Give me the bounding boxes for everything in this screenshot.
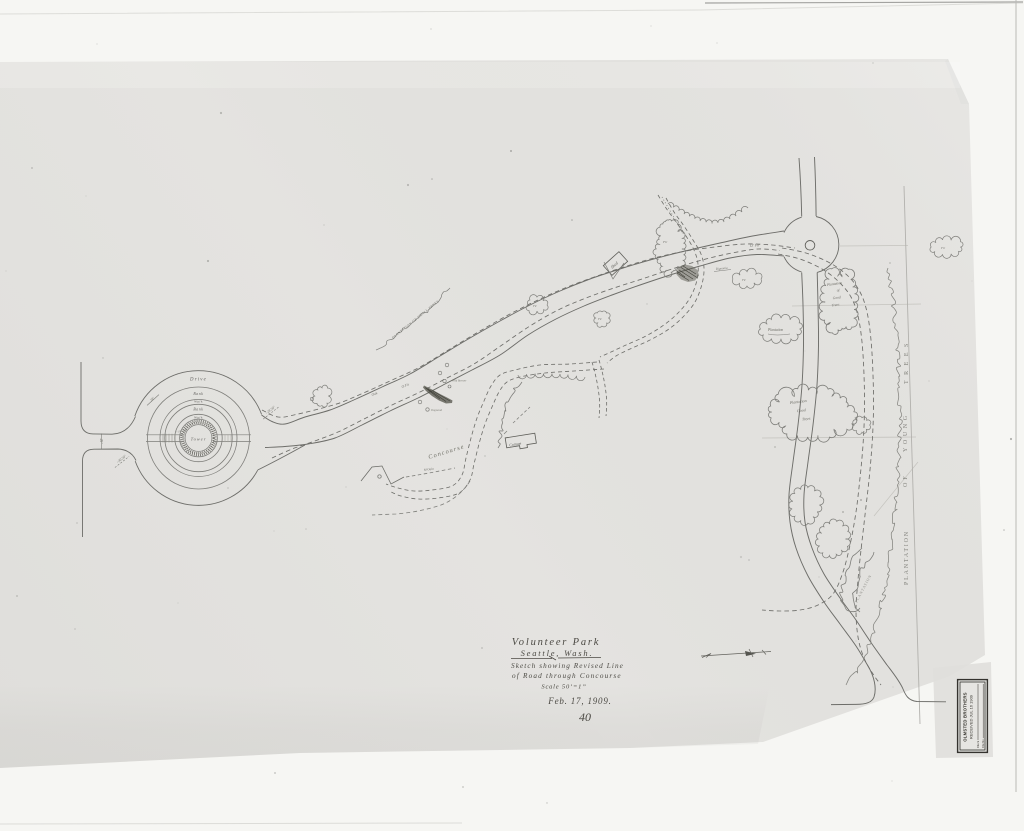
svg-text:Tower: Tower — [191, 436, 207, 441]
svg-text:Feb. 17, 1909.: Feb. 17, 1909. — [547, 696, 611, 706]
svg-text:Walk: Walk — [194, 400, 203, 404]
svg-text:File No.: File No. — [981, 738, 985, 748]
svg-text:25’: 25’ — [99, 439, 103, 445]
svg-text:Dogwood: Dogwood — [430, 409, 442, 412]
svg-text:Sketch showing Revised Line: Sketch showing Revised Line — [511, 662, 624, 670]
svg-text:Fir: Fir — [532, 304, 538, 308]
svg-text:Fir: Fir — [597, 317, 603, 321]
svg-text:Scale 50’=1”: Scale 50’=1” — [541, 684, 586, 691]
svg-text:Fir: Fir — [662, 240, 668, 244]
svg-text:Drive: Drive — [189, 378, 207, 383]
svg-text:PLANTATION: PLANTATION — [904, 530, 910, 585]
svg-text:of Road through Concourse: of Road through Concourse — [512, 672, 622, 680]
svg-text:Fir: Fir — [940, 246, 946, 250]
svg-text:Fir: Fir — [741, 278, 747, 282]
svg-text:Bank: Bank — [193, 392, 203, 396]
svg-text:40: 40 — [579, 710, 591, 724]
svg-text:TREES: TREES — [904, 338, 910, 384]
svg-text:YOUNG: YOUNG — [903, 412, 909, 452]
svg-text:Walk: Walk — [194, 416, 203, 420]
svg-text:OF: OF — [903, 473, 909, 487]
svg-text:Seattle, Wash.: Seattle, Wash. — [521, 648, 594, 658]
svg-text:Client: Client — [976, 741, 980, 748]
svg-text:RECEIVED JUL 16 1909: RECEIVED JUL 16 1909 — [969, 694, 974, 739]
svg-text:O’ Fir: O’ Fir — [750, 242, 761, 248]
svg-text:OLMSTED BROTHERS: OLMSTED BROTHERS — [963, 692, 968, 742]
svg-text:Wild Borrow: Wild Borrow — [452, 380, 466, 383]
svg-text:Volunteer Park: Volunteer Park — [512, 637, 600, 648]
svg-text:Bank: Bank — [193, 408, 203, 412]
svg-text:Plantation: Plantation — [767, 328, 783, 332]
